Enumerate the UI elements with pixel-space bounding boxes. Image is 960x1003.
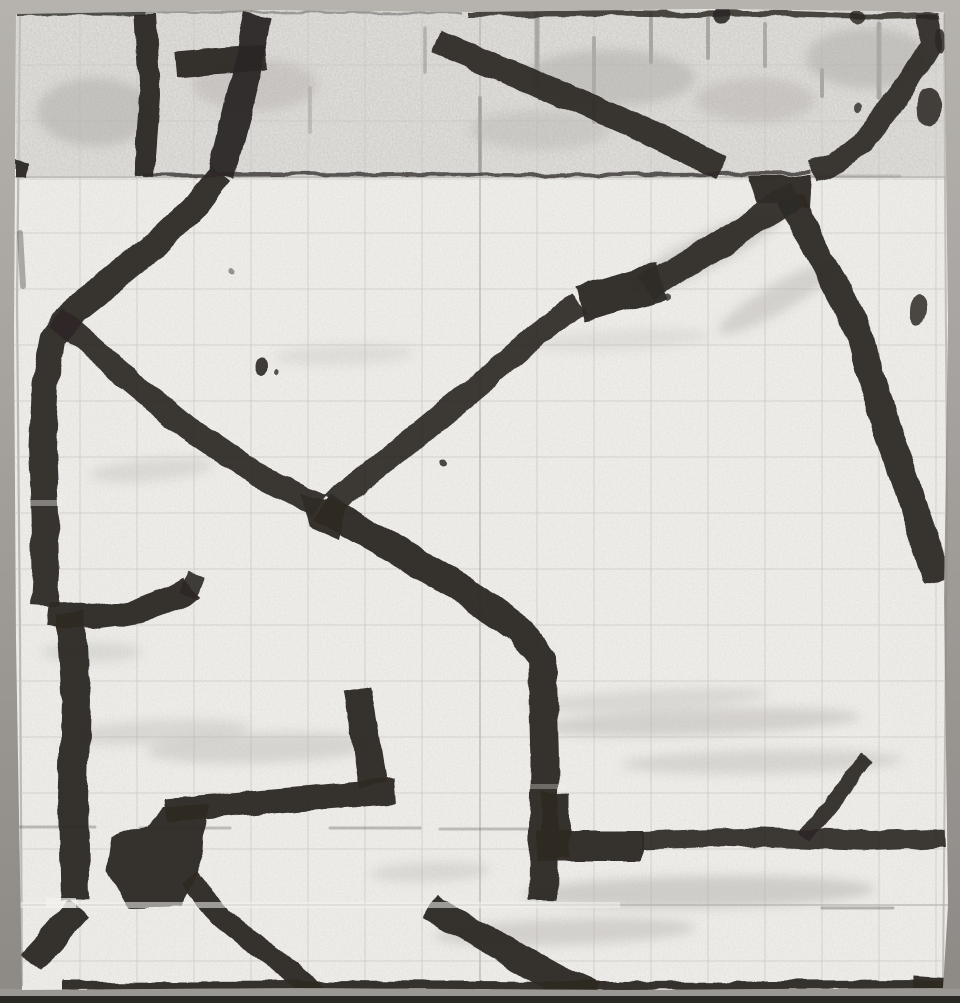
shadow-strip xyxy=(0,989,960,997)
smudge xyxy=(695,78,815,122)
artwork-photograph xyxy=(0,0,960,1003)
crease-dark-mark xyxy=(20,233,23,286)
fold-gap xyxy=(28,500,62,506)
ink-dot xyxy=(664,294,670,301)
fold-gap xyxy=(20,902,620,908)
ink-dot xyxy=(255,359,267,377)
ink-dot xyxy=(275,371,280,376)
ink-shape-v-apex-block xyxy=(748,176,812,208)
ink-stroke-bottom-edge-band xyxy=(62,985,945,986)
ink-shape-fold-edge-blob xyxy=(16,158,28,177)
ink-shape-horiz-junction-bump xyxy=(542,790,570,858)
ink-dot xyxy=(440,459,447,467)
ink-stroke-left-vertical-bottom xyxy=(71,612,76,900)
shadow-strip xyxy=(0,996,960,1003)
ink-dot xyxy=(227,267,233,273)
ink-dot xyxy=(934,27,946,53)
smudge xyxy=(42,642,142,662)
ink-dot xyxy=(854,103,862,113)
smudge xyxy=(37,78,153,146)
ink-stroke-left-vertical-top xyxy=(144,15,150,176)
fold-gap xyxy=(46,898,76,908)
artwork-canvas xyxy=(0,0,960,1003)
ink-dot xyxy=(158,235,163,241)
ink-stroke-top-edge-faint xyxy=(146,12,462,13)
ink-dot xyxy=(848,9,864,23)
ink-stroke-painted-fold-line xyxy=(143,173,812,175)
fold-gap xyxy=(530,784,566,789)
ink-stroke-long-horizontal xyxy=(640,837,946,841)
ink-stroke-hook-tip xyxy=(187,573,195,594)
bottom-shadow-strips xyxy=(0,989,960,1003)
ink-dot xyxy=(713,7,731,23)
ink-stroke-mid-vertical xyxy=(357,689,373,786)
ink-stroke-top-edge-right xyxy=(468,13,941,16)
